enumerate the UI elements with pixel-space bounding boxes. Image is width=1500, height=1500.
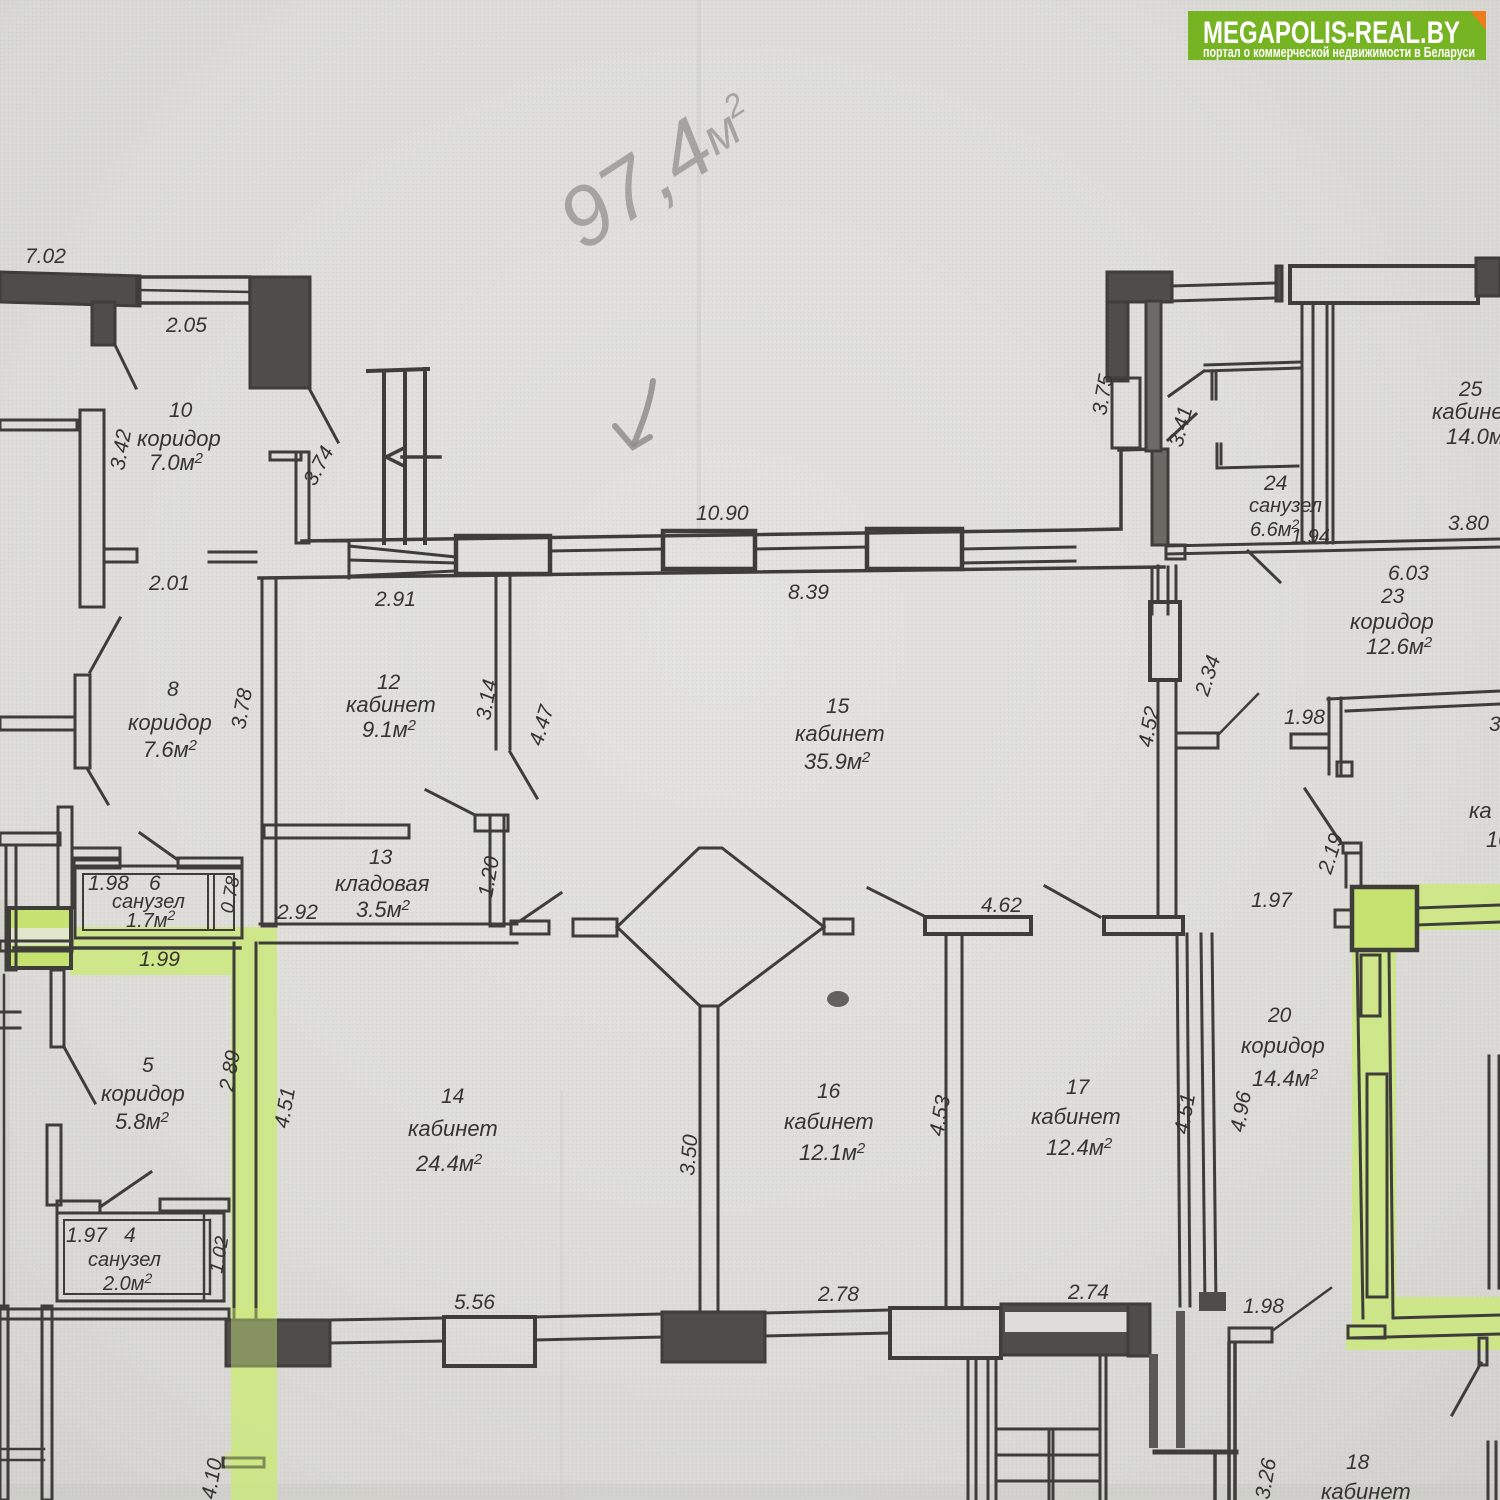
svg-text:2.92: 2.92 (276, 901, 318, 924)
svg-text:12: 12 (377, 671, 401, 694)
svg-text:2.78: 2.78 (817, 1283, 859, 1306)
svg-text:3.50: 3.50 (676, 1133, 703, 1176)
svg-text:18: 18 (1346, 1451, 1370, 1474)
svg-text:кабинет: кабинет (408, 1116, 498, 1141)
svg-text:1.99: 1.99 (139, 948, 180, 971)
svg-text:20: 20 (1267, 1004, 1292, 1027)
svg-text:4.62: 4.62 (981, 894, 1022, 917)
svg-text:8: 8 (167, 678, 179, 701)
svg-text:3: 3 (1489, 713, 1500, 736)
svg-text:8.39: 8.39 (788, 581, 829, 604)
svg-text:санузел: санузел (1249, 495, 1322, 517)
svg-text:коридор: коридор (1241, 1033, 1325, 1058)
svg-text:1.97: 1.97 (66, 1224, 108, 1247)
svg-text:1.98: 1.98 (1243, 1295, 1284, 1318)
svg-text:портал о коммерческой недвижим: портал о коммерческой недвижимости в Бел… (1203, 44, 1475, 61)
svg-text:2.05: 2.05 (165, 314, 207, 337)
svg-text:2.74: 2.74 (1067, 1281, 1109, 1304)
svg-text:6.03: 6.03 (1388, 562, 1429, 585)
svg-text:кабинет: кабинет (346, 692, 436, 717)
svg-text:1.97: 1.97 (1251, 889, 1293, 912)
svg-text:4: 4 (124, 1224, 136, 1247)
svg-text:10: 10 (169, 399, 193, 422)
svg-text:12.4м2: 12.4м2 (1046, 1135, 1113, 1160)
svg-text:5: 5 (142, 1054, 154, 1077)
svg-text:коридор: коридор (128, 710, 212, 735)
svg-text:23: 23 (1380, 585, 1405, 608)
svg-text:14: 14 (441, 1085, 464, 1108)
svg-text:кабинет: кабинет (1432, 399, 1500, 424)
svg-text:24: 24 (1263, 472, 1287, 495)
svg-text:24.4м2: 24.4м2 (415, 1151, 483, 1176)
svg-text:коридор: коридор (101, 1081, 185, 1106)
svg-text:16: 16 (817, 1080, 841, 1103)
svg-text:1.94: 1.94 (1291, 526, 1330, 548)
svg-text:25: 25 (1458, 378, 1483, 401)
svg-text:кабинет: кабинет (795, 721, 885, 746)
svg-text:14.0м2: 14.0м2 (1446, 424, 1500, 449)
svg-text:10: 10 (1486, 827, 1500, 852)
svg-text:1.98: 1.98 (1284, 706, 1325, 729)
svg-text:7.02: 7.02 (25, 245, 66, 268)
svg-text:35.9м2: 35.9м2 (804, 749, 871, 774)
svg-text:17: 17 (1066, 1076, 1091, 1099)
svg-text:санузел: санузел (88, 1249, 161, 1271)
svg-text:15: 15 (826, 695, 850, 718)
svg-text:2.91: 2.91 (374, 588, 416, 611)
svg-text:3.80: 3.80 (1448, 512, 1489, 535)
svg-text:5.56: 5.56 (454, 1291, 495, 1314)
svg-text:13: 13 (369, 846, 393, 869)
svg-text:кабинет: кабинет (784, 1109, 874, 1134)
svg-text:12.6м2: 12.6м2 (1366, 634, 1433, 659)
svg-text:коридор: коридор (1350, 609, 1434, 634)
svg-text:12.1м2: 12.1м2 (799, 1140, 866, 1165)
svg-text:кабинет: кабинет (1031, 1104, 1121, 1129)
svg-text:2.01: 2.01 (148, 572, 190, 595)
svg-text:коридор: коридор (137, 426, 221, 451)
svg-text:14.4м2: 14.4м2 (1252, 1066, 1319, 1091)
svg-text:10.90: 10.90 (696, 502, 749, 525)
svg-text:кладовая: кладовая (335, 871, 430, 896)
svg-text:кабинет: кабинет (1321, 1479, 1411, 1500)
svg-text:ка: ка (1469, 798, 1492, 823)
